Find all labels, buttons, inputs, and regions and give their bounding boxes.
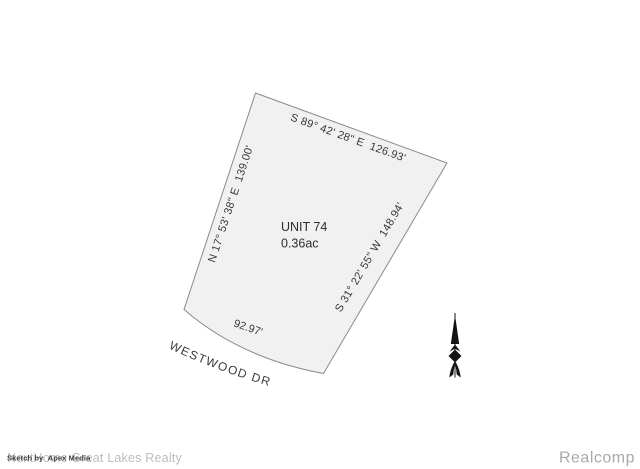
north-arrow-icon (449, 313, 462, 378)
north-arrow-spike (451, 315, 459, 344)
north-arrow-feather-right (455, 362, 461, 378)
watermark-sketch-credit: Sketch by Apex Media (7, 454, 91, 463)
area-label: 0.36ac (281, 237, 319, 251)
unit-number-label: UNIT 74 (281, 220, 327, 234)
survey-drawing: S 89° 42' 28" E 126.93' N 17° 53' 38" E … (0, 0, 640, 469)
north-arrow-feather-left (449, 362, 455, 378)
watermark-brand: Realcomp (559, 450, 635, 467)
plat-sketch-page: S 89° 42' 28" E 126.93' N 17° 53' 38" E … (0, 0, 640, 469)
north-arrow-diamond (449, 350, 462, 363)
